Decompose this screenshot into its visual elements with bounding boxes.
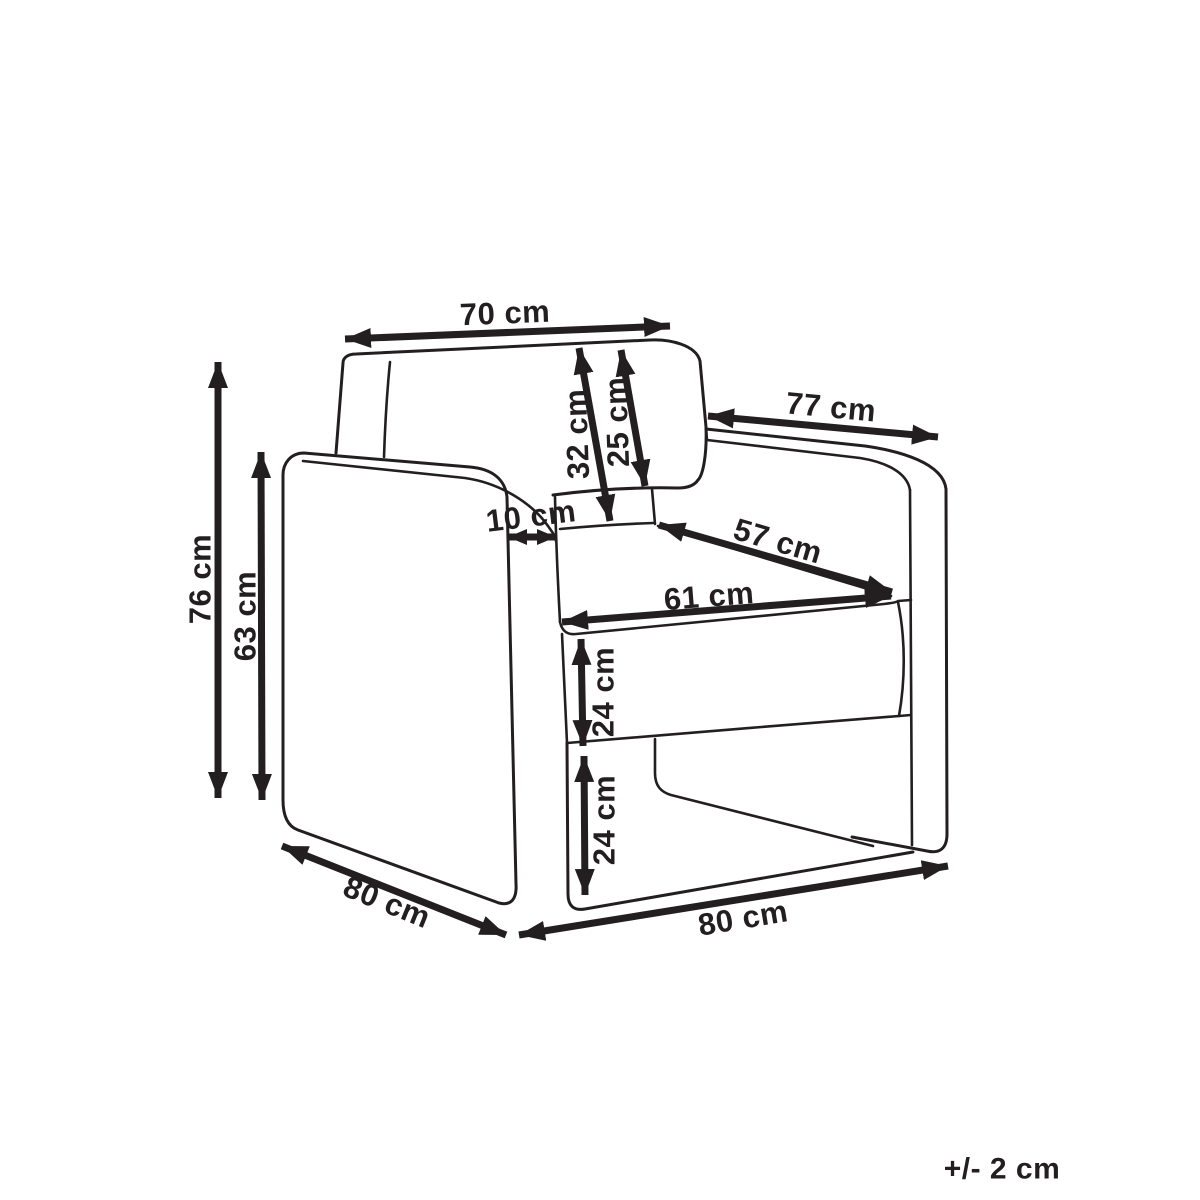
dimension-label-25cm: 25 cm xyxy=(598,376,636,468)
base-recess-edge xyxy=(655,739,873,846)
dimension-label-10cm: 10 cm xyxy=(484,493,578,539)
backrest-outline xyxy=(336,340,706,495)
dimension-base-depth: 80 cm xyxy=(282,846,506,935)
dimension-armrest-height: 63 cm xyxy=(228,452,263,800)
backrest-left-seam xyxy=(384,362,390,457)
dimension-depth-along-armrest: 77 cm xyxy=(708,385,938,437)
dimension-label-76cm: 76 cm xyxy=(183,534,218,624)
seat-cushion-right-edge xyxy=(898,602,911,716)
dimension-backrest-width: 70 cm xyxy=(345,294,670,339)
dimension-label-32cm: 32 cm xyxy=(558,388,596,480)
right-armrest-top-seam xyxy=(706,429,910,490)
dimension-overall-height: 76 cm xyxy=(183,362,219,798)
left-armrest-outline xyxy=(283,453,516,904)
seat-cushion-left-edge xyxy=(562,634,567,743)
right-armrest-outer-edge xyxy=(852,489,947,852)
dimension-label-63cm: 63 cm xyxy=(228,571,263,661)
dimension-label-80cm-right: 80 cm xyxy=(696,893,791,942)
dimension-label-24cm-lower: 24 cm xyxy=(587,775,622,865)
right-armrest-top-edge xyxy=(706,429,946,489)
armchair-dimension-diagram: 70 cm 77 cm 32 cm 25 cm 10 cm 57 cm 61 c… xyxy=(0,0,1200,1200)
dimension-label-70cm: 70 cm xyxy=(459,294,551,333)
dimension-under-seat-height: 24 cm xyxy=(584,756,622,895)
tolerance-note: +/- 2 cm xyxy=(944,1153,1061,1186)
dimension-label-80cm-left: 80 cm xyxy=(339,869,436,935)
dimension-arrow-24cm-lower xyxy=(584,756,585,895)
dimension-seat-cushion-height: 24 cm xyxy=(581,639,621,746)
dimension-backrest-panel-height: 25 cm xyxy=(598,350,645,486)
dimension-arrow-24cm-upper xyxy=(581,639,583,746)
right-armrest-inner-edge xyxy=(910,490,912,845)
dimension-drawing-canvas: 70 cm 77 cm 32 cm 25 cm 10 cm 57 cm 61 c… xyxy=(0,0,1200,1200)
dimension-armrest-thickness: 10 cm xyxy=(484,493,578,539)
dimension-label-24cm-upper: 24 cm xyxy=(586,647,621,737)
dimension-label-61cm: 61 cm xyxy=(663,575,756,617)
